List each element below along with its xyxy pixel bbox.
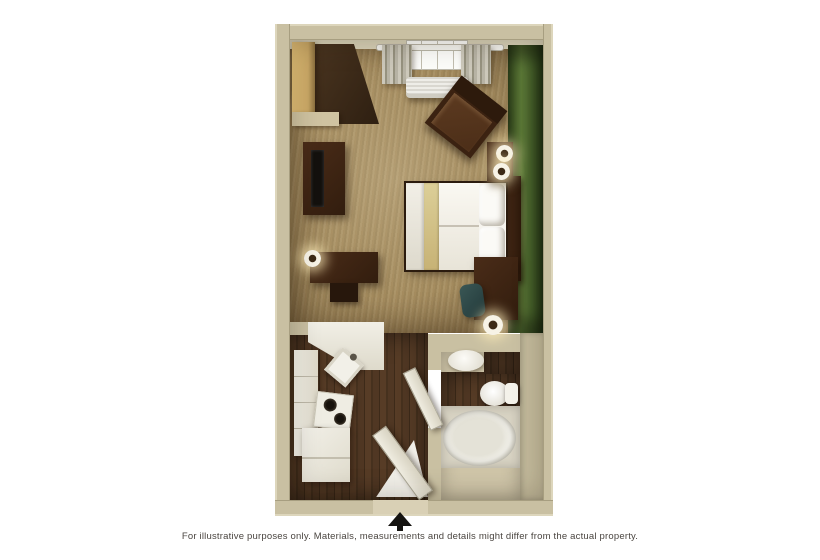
toilet-tank [505, 383, 518, 404]
pillow [479, 184, 505, 226]
tv-screen [311, 150, 324, 207]
kitchen-stub-wall [290, 322, 310, 335]
north-arrow-icon [388, 512, 412, 532]
teal-chair [459, 283, 486, 319]
nightstand-lamp [496, 145, 513, 162]
bathtub [443, 410, 516, 466]
bathroom-right-wall [520, 333, 543, 500]
refrigerator-cabinet [302, 428, 350, 482]
stove-burner [333, 412, 346, 425]
desk-lamp [304, 250, 321, 267]
bed-foot-band [406, 183, 424, 270]
desk-chair [330, 283, 358, 302]
wall-left [275, 24, 290, 516]
tv-stand [303, 142, 345, 215]
cooktop-stove [313, 391, 354, 431]
table-lamp [483, 315, 503, 335]
north-arrow-head [388, 512, 412, 526]
closet-lower-shelf [292, 112, 339, 126]
closet-shelf [292, 42, 315, 114]
bed-seam [439, 225, 479, 227]
wall-right [543, 24, 553, 516]
floor-plan-page: For illustrative purposes only. Material… [0, 0, 820, 560]
nightstand-lamp [493, 163, 510, 180]
wall-top [275, 24, 553, 40]
stove-burner [323, 398, 337, 412]
bathroom-wood-vanity-floor [484, 352, 520, 374]
disclaimer-caption: For illustrative purposes only. Material… [0, 531, 820, 542]
vanity-sink [448, 350, 484, 371]
bed-runner [424, 183, 439, 270]
bathroom-wall-upper [428, 352, 441, 370]
